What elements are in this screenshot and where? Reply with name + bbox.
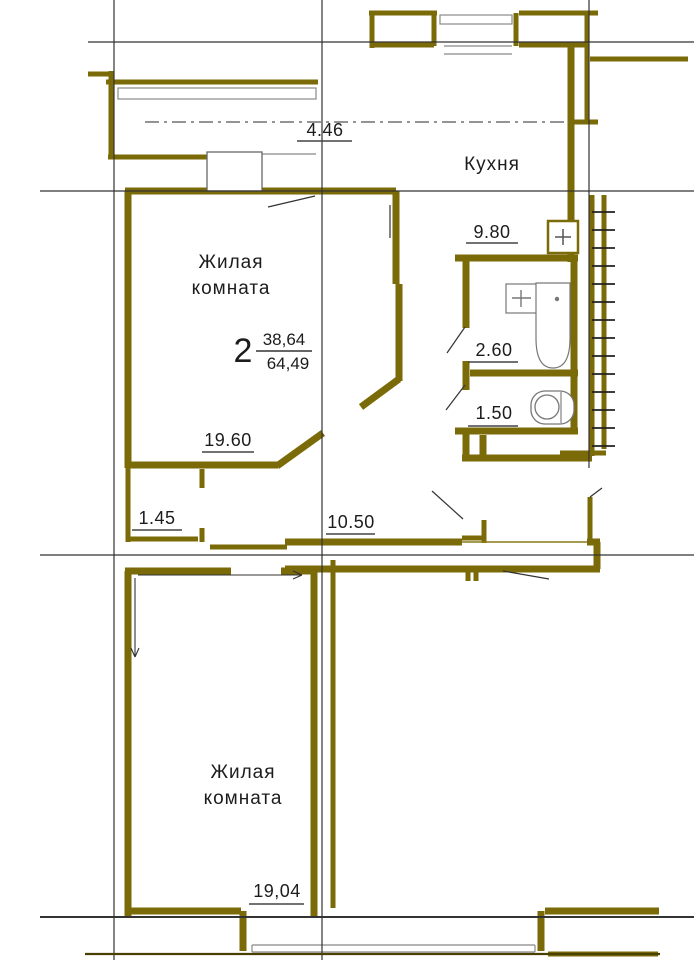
toilet-area: 1.50 [475, 403, 512, 423]
labels: 4.46 Кухня 9.80 Жилая комната 2 38,64 64… [132, 120, 520, 904]
room-count: 2 [234, 332, 253, 370]
bathroom-area: 2.60 [475, 340, 512, 360]
entry-door-swing [432, 491, 463, 519]
arrow-vertical [131, 578, 139, 657]
living1-label-line2: комната [192, 278, 271, 299]
floor-plan-drawing: 4.46 Кухня 9.80 Жилая комната 2 38,64 64… [0, 0, 694, 960]
fixtures [506, 221, 578, 424]
living2-area: 19,04 [253, 881, 301, 901]
toilet-door-swing [446, 385, 465, 410]
bathtub [536, 283, 570, 368]
dimension-arrows [131, 571, 302, 657]
living2-label-line2: комната [204, 788, 283, 809]
kitchen-bay-window [440, 15, 512, 24]
living1-door-leader [268, 196, 315, 207]
living1-label-line1: Жилая [198, 252, 263, 273]
kitchen-inner-window-lines [444, 46, 512, 54]
kitchen-area: 9.80 [473, 222, 510, 242]
floor-plan-canvas: 4.46 Кухня 9.80 Жилая комната 2 38,64 64… [0, 0, 694, 960]
hallway-area: 10.50 [327, 512, 375, 532]
walls-thick [125, 45, 659, 951]
total-area: 64,49 [267, 354, 310, 373]
toilet-bowl [535, 395, 559, 419]
axis-grid-lines [40, 0, 694, 960]
walls-medium [88, 13, 688, 954]
bathtub-drain [555, 297, 559, 301]
loggia-area: 4.46 [306, 120, 343, 140]
bathroom-door-swing [447, 327, 465, 353]
loggia-window [118, 88, 316, 99]
entry-jamb-tick [590, 488, 602, 497]
living1-area: 19.60 [204, 430, 252, 450]
niche-area: 1.45 [138, 508, 175, 528]
living2-label-line1: Жилая [210, 762, 275, 783]
bottom-bay-window [252, 945, 535, 952]
balcony-door-unit [207, 152, 262, 191]
kitchen-label: Кухня [464, 154, 520, 175]
living-area-total: 38,64 [263, 330, 306, 349]
